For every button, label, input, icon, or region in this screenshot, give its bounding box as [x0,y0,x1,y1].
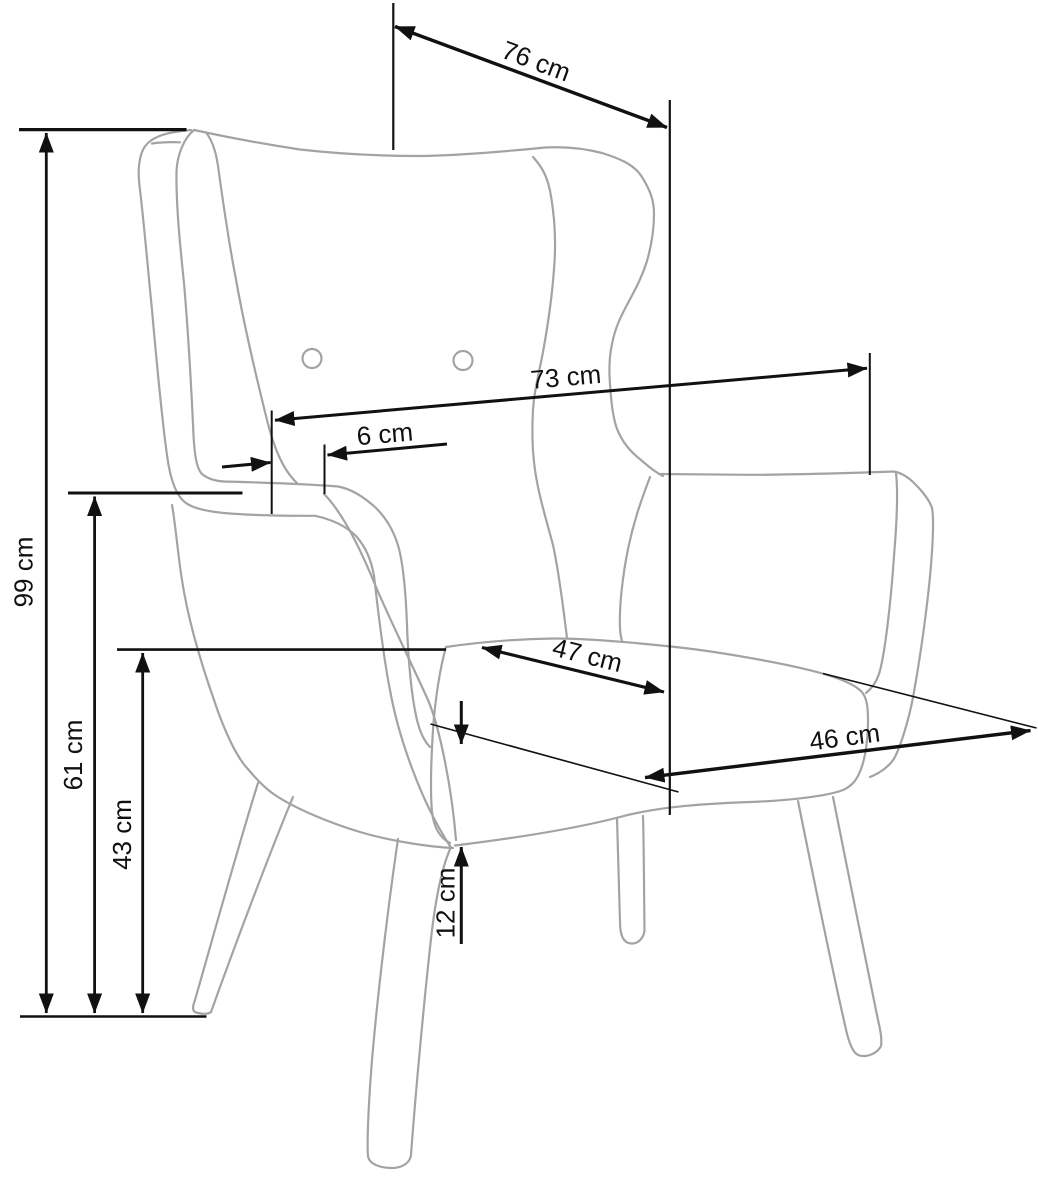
svg-text:12 cm: 12 cm [430,868,460,939]
svg-text:47 cm: 47 cm [550,632,626,678]
svg-text:61 cm: 61 cm [58,720,88,791]
svg-text:73 cm: 73 cm [529,359,602,395]
svg-text:6 cm: 6 cm [355,416,414,451]
svg-text:43 cm: 43 cm [107,799,137,870]
svg-text:99 cm: 99 cm [8,537,38,608]
